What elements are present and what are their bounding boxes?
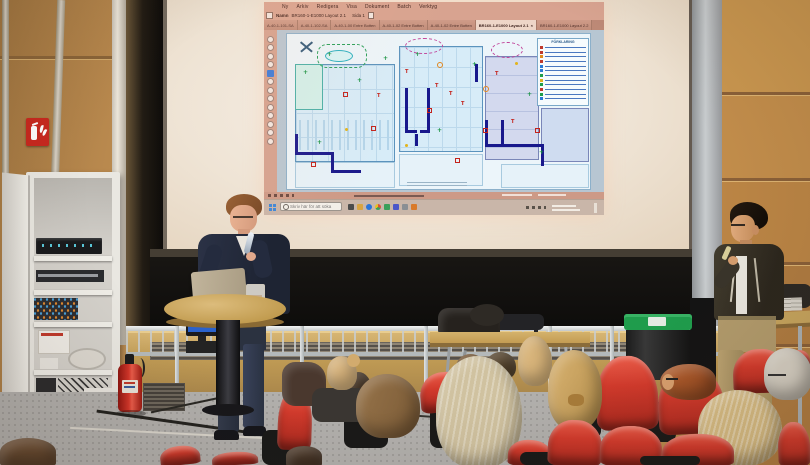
plan-escape-route — [295, 134, 298, 154]
co-presenter-ear — [752, 225, 759, 235]
table-base — [202, 404, 254, 416]
plan-marker — [371, 126, 376, 131]
taskbar-icon-edge[interactable] — [366, 204, 372, 210]
plan-marker: + — [357, 78, 362, 84]
plan-revision-cloud-magenta — [491, 42, 523, 58]
drawing-tab[interactable]: A-40-1-101-SA — [264, 20, 298, 30]
toolbar-icon[interactable] — [267, 87, 274, 94]
cable-coil — [68, 348, 106, 370]
plan-marker — [405, 144, 408, 147]
presenter-face — [230, 205, 257, 232]
redhair-face — [662, 374, 674, 390]
plan-marker: + — [327, 52, 332, 58]
extinguisher-label-marks — [124, 386, 135, 388]
menu-item[interactable]: Batch — [397, 4, 411, 10]
right-wall-seam — [722, 92, 810, 95]
drawing-tab-active[interactable]: BR160-1-E1000 Layout 2.1× — [476, 20, 537, 30]
extinguisher-label-marks — [124, 382, 135, 384]
plan-marker: T — [511, 120, 514, 125]
drawing-tab[interactable]: BR160-1-E1000 Layout 2.2 — [537, 20, 592, 30]
tab-label: A-40-1-00 Entre Botten — [334, 23, 375, 28]
audience-seat — [777, 421, 810, 465]
plan-marker: + — [303, 70, 308, 76]
plan-marker: + — [415, 52, 420, 58]
toolbar-icon[interactable] — [267, 61, 274, 68]
legend-item-chip — [540, 74, 543, 77]
windows-taskbar — [264, 199, 604, 215]
presenter-shoe — [214, 430, 239, 440]
extinguisher-label — [122, 380, 138, 393]
taskbar-icon[interactable] — [348, 204, 354, 210]
cabinet-shelf — [34, 256, 112, 261]
legend-item-label-line — [545, 89, 586, 90]
plan-marker — [455, 158, 460, 163]
tab-close-icon[interactable]: × — [531, 23, 533, 28]
plan-north-arrow — [299, 40, 315, 54]
tray-date-line — [552, 209, 580, 211]
dvd-player — [36, 270, 104, 282]
drawing-tab[interactable]: A-40-1-02 Entre Botten — [380, 20, 428, 30]
fire-extinguisher-sign-icon — [31, 126, 37, 140]
plan-marker: T — [377, 94, 380, 99]
status-right-text — [502, 194, 532, 196]
doc-icon[interactable] — [266, 12, 273, 19]
plan-marker — [437, 62, 443, 68]
tab-label: A-40-1-02 Entre Botten — [383, 23, 424, 28]
legend-item-chip — [540, 83, 543, 86]
tab-label: BR160-1-E1000 Layout 2.2 — [540, 23, 588, 28]
plan-legend-box: FÖRKLARING — [537, 38, 589, 106]
taskbar-icon[interactable] — [411, 204, 417, 210]
toolbar-icon[interactable] — [267, 53, 274, 60]
document-red-label — [41, 333, 63, 336]
tab-label: BR160-1-E1000 Layout 2.1 — [479, 23, 529, 28]
plan-room-cyan — [295, 64, 323, 110]
plan-marker — [427, 108, 432, 113]
amplifier-leds — [42, 244, 92, 247]
legend-item-label-line — [545, 56, 586, 57]
toolbar-icon[interactable] — [267, 36, 274, 43]
cad-canvas[interactable]: T T T T T T T + + + + — [277, 30, 604, 192]
cad-left-toolbar — [264, 30, 277, 192]
taskbar-icon[interactable] — [384, 204, 390, 210]
amplifier — [36, 238, 102, 254]
plan-marker: T — [449, 92, 452, 97]
fire-extinguisher — [114, 352, 146, 418]
plan-escape-route — [415, 134, 418, 146]
plan-lower-rooms — [295, 162, 395, 188]
plan-title-strip — [407, 182, 467, 186]
audio-mixer — [34, 298, 78, 320]
toolbar-icon[interactable] — [267, 112, 274, 119]
audience-head — [286, 446, 322, 465]
legend-item-chip — [540, 51, 543, 54]
doc-name-label: Namn — [276, 13, 289, 18]
audience-head — [0, 438, 56, 465]
taskbar-icon-folder[interactable] — [357, 204, 363, 210]
legend-item-chip — [540, 88, 543, 91]
small-white-box — [40, 358, 58, 369]
legend-item-chip — [540, 69, 543, 72]
tab-label: A-40-1-101-SA — [267, 23, 294, 28]
plan-marker: + — [539, 150, 544, 156]
presenter-hand — [246, 252, 256, 261]
legend-item-chip — [540, 55, 543, 58]
fire-extinguisher-sign — [26, 118, 49, 146]
drawing-paper: T T T T T T T + + + + — [286, 33, 591, 190]
audience-hair-bun — [347, 354, 360, 367]
toolbar-icon[interactable] — [267, 44, 274, 51]
tray-icons — [526, 206, 546, 209]
plan-escape-route — [331, 152, 334, 172]
plan-escape-route — [485, 144, 543, 147]
co-presenter-hand — [728, 256, 738, 265]
lectern-table — [164, 292, 288, 426]
plan-marker: + — [383, 56, 388, 62]
menu-item[interactable]: Ny — [282, 4, 289, 10]
tab-label: A-40-1-02 Entre Botten — [431, 23, 472, 28]
plan-striped-hall — [299, 120, 389, 150]
legend-item-chip — [540, 46, 543, 49]
legend-item-label-line — [545, 80, 586, 81]
toolbar-icon[interactable] — [267, 129, 274, 136]
toolbar-icon-active[interactable] — [267, 70, 274, 77]
audience-head-ponytail — [548, 350, 602, 430]
legend-item-label-line — [545, 52, 586, 53]
legend-item-chip — [540, 79, 543, 82]
legend-item-label-line — [545, 84, 586, 85]
cad-document-bar: Namn BR160-1-E1000 Layout 2.1 Sida 1 — [264, 11, 604, 20]
legend-item-chip — [540, 60, 543, 63]
legend-item-label-line — [545, 98, 586, 99]
doc-page-indicator: Sida 1 — [352, 13, 365, 18]
cabinet-shelf — [34, 322, 112, 327]
legend-item — [538, 97, 588, 102]
menu-item[interactable]: Arkiv — [297, 4, 309, 10]
legend-item-label-line — [545, 66, 586, 67]
plan-marker: + — [317, 140, 322, 146]
plan-marker — [483, 86, 489, 92]
tab-label: A-40-1-102-SA — [301, 23, 328, 28]
co-presenter-pants — [718, 320, 776, 352]
plan-escape-route — [501, 120, 504, 146]
presenter-glasses — [233, 216, 253, 218]
system-tray[interactable] — [526, 203, 600, 213]
status-right-text — [538, 194, 566, 196]
seat-frame — [640, 456, 700, 465]
new-page-icon[interactable] — [368, 12, 374, 19]
show-desktop-button[interactable] — [594, 203, 597, 213]
legend-item-chip — [540, 65, 543, 68]
legend-item-label-line — [545, 70, 586, 71]
co-presenter-glasses — [731, 224, 745, 226]
plan-marker — [345, 128, 348, 131]
menu-item[interactable]: Verktyg — [419, 4, 437, 10]
plan-far-right-block — [541, 108, 589, 162]
doc-name-value: BR160-1-E1000 Layout 2.1 — [292, 13, 347, 18]
plan-escape-route — [405, 88, 408, 132]
bin-lid-label — [648, 317, 666, 326]
plan-marker — [311, 162, 316, 167]
legend-item-label-line — [545, 61, 586, 62]
plan-marker: T — [495, 72, 498, 77]
plan-marker: T — [405, 70, 408, 75]
plan-escape-route — [420, 130, 430, 133]
table-pedestal — [216, 320, 240, 408]
plan-marker — [535, 128, 540, 133]
taskbar-icon-chrome[interactable] — [375, 204, 381, 210]
redhair-glasses — [666, 378, 678, 380]
plan-escape-route — [331, 170, 361, 173]
legend-item-label-line — [545, 75, 586, 76]
cabinet-door-open — [2, 173, 30, 430]
lecture-hall-photo: Ny Arkiv Redigera Visa Dokument Batch Ve… — [0, 0, 810, 465]
toolbar-icon[interactable] — [267, 121, 274, 128]
toolbar-icon[interactable] — [267, 78, 274, 85]
drawing-tab[interactable]: A-40-1-00 Entre Botten — [331, 20, 379, 30]
plan-marker: T — [435, 84, 438, 89]
menu-item[interactable]: Redigera — [317, 4, 339, 10]
cabinet-shelf — [34, 370, 112, 375]
plan-marker: + — [472, 62, 477, 68]
menu-item[interactable]: Visa — [347, 4, 357, 10]
toolbar-icon[interactable] — [267, 104, 274, 111]
ponytail-band — [568, 394, 584, 406]
cad-tab-bar: A-40-1-101-SA A-40-1-102-SA A-40-1-00 En… — [264, 20, 604, 30]
legend-item-label-line — [545, 47, 586, 48]
dvd-front-strip — [38, 274, 98, 277]
drawing-tab[interactable]: A-40-1-02 Entre Botten — [428, 20, 476, 30]
cad-menu-bar: Ny Arkiv Redigera Visa Dokument Batch Ve… — [264, 2, 604, 11]
legend-item-label-line — [545, 94, 586, 95]
plan-escape-route — [405, 130, 417, 133]
plan-marker — [515, 62, 518, 65]
drawing-tab[interactable]: A-40-1-102-SA — [298, 20, 332, 30]
status-coordinates — [354, 195, 424, 197]
cad-status-bar — [264, 192, 604, 199]
right-wall-seam — [722, 178, 810, 181]
menu-item[interactable]: Dokument — [365, 4, 389, 10]
taskbar-icons — [348, 204, 420, 210]
legend-item-chip — [540, 93, 543, 96]
plan-marker: T — [461, 102, 464, 107]
toolbar-icon[interactable] — [267, 95, 274, 102]
plan-escape-route — [485, 120, 488, 146]
toolbar-icon[interactable] — [267, 138, 274, 145]
audience-head — [518, 336, 552, 386]
document-box — [38, 330, 70, 354]
cabinet-shelf — [34, 290, 112, 295]
plan-revision-cloud-magenta — [405, 38, 443, 54]
floor-plan: T T T T T T T + + + + — [287, 34, 590, 189]
plan-marker — [483, 128, 488, 133]
plan-lower-rooms — [501, 164, 589, 188]
legend-item-chip — [540, 97, 543, 100]
plan-marker: + — [437, 128, 442, 134]
projection-cad-desktop: Ny Arkiv Redigera Visa Dokument Batch Ve… — [264, 2, 604, 215]
gray-glasses-arm — [768, 374, 786, 376]
taskbar-icon[interactable] — [402, 204, 408, 210]
tray-clock-line — [552, 205, 576, 207]
taskbar-icon-teams[interactable] — [393, 204, 399, 210]
plan-marker — [343, 92, 348, 97]
plan-escape-route — [295, 152, 333, 155]
plan-marker: + — [527, 92, 532, 98]
audience-head — [356, 374, 420, 438]
table-bag-lump — [470, 304, 504, 326]
